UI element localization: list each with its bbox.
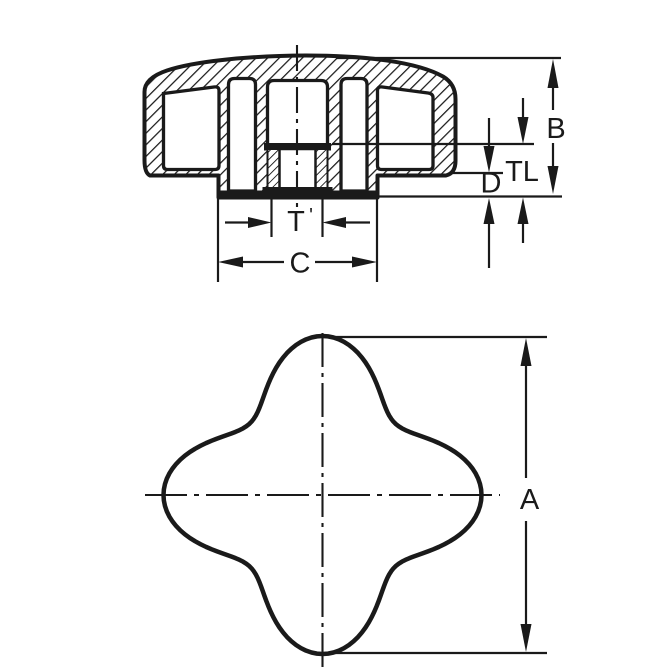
arrowhead-down-icon <box>548 166 559 194</box>
arrowhead-up-icon <box>484 198 495 224</box>
arrowhead-right-icon <box>352 257 377 268</box>
dimension-a: A <box>520 338 540 652</box>
dimension-label-d: D <box>481 168 502 200</box>
arrowhead-left-icon <box>323 217 347 228</box>
dimension-label-c: C <box>290 248 311 280</box>
right-rib-slot <box>341 79 367 192</box>
dimension-label-tl: TL <box>505 156 539 188</box>
dimension-c: C <box>218 248 377 280</box>
dimension-tl: TL <box>505 98 539 243</box>
arrowhead-down-icon <box>521 624 532 652</box>
dimension-b: B <box>546 59 565 194</box>
section-view: B TL D T ' <box>145 45 566 282</box>
plan-view: A <box>145 333 547 668</box>
left-lobe-cavity <box>164 87 220 170</box>
dimension-label-t: T <box>287 206 305 238</box>
drawing-page: B TL D T ' <box>0 0 670 670</box>
left-rib-slot <box>229 79 256 192</box>
dimension-d: D <box>481 118 502 268</box>
arrowhead-up-icon <box>548 59 559 88</box>
dimension-t: T ' <box>225 205 370 238</box>
dimension-label-a: A <box>520 484 540 516</box>
dimension-label-b: B <box>546 113 565 145</box>
arrowhead-up-icon <box>521 338 532 366</box>
arrowhead-left-icon <box>218 257 243 268</box>
arrowhead-up-icon <box>518 198 529 225</box>
insert-left-wall <box>268 149 280 191</box>
knob-technical-drawing: B TL D T ' <box>0 0 670 670</box>
arrowhead-right-icon <box>248 217 272 228</box>
right-lobe-cavity <box>378 87 434 170</box>
arrowhead-down-icon <box>518 117 529 144</box>
dimension-label-t-tick: ' <box>309 205 313 227</box>
insert-right-wall <box>316 149 328 191</box>
